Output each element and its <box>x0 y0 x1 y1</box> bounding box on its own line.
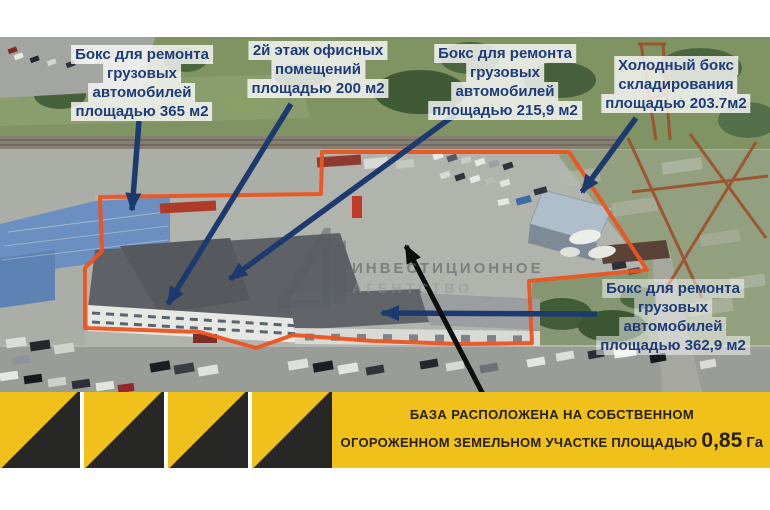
hazard-stripes <box>0 392 332 468</box>
callout-office-200: 2й этаж офисных помещений площадью 200 м… <box>247 41 388 98</box>
callout-line: площадью 203.7м2 <box>601 94 750 113</box>
banner-line2-prefix: ОГОРОЖЕННОМ ЗЕМЕЛЬНОМ УЧАСТКЕ ПЛОЩАДЬЮ <box>341 435 698 450</box>
callout-line: грузовых <box>634 298 712 317</box>
callout-box-362: Бокс для ремонта грузовых автомобилей пл… <box>596 279 750 355</box>
callout-line: помещений <box>271 60 365 79</box>
callout-line: Бокс для ремонта <box>71 45 213 64</box>
callout-line: площадью 200 м2 <box>247 79 388 98</box>
callout-line: автомобилей <box>89 83 196 102</box>
arrow-box-362 <box>382 313 597 314</box>
banner-area-unit: Га <box>746 434 763 451</box>
callout-line: автомобилей <box>620 317 727 336</box>
callout-line: Холодный бокс <box>614 56 738 75</box>
banner-text: БАЗА РАСПОЛОЖЕНА НА СОБСТВЕННОМ ОГОРОЖЕН… <box>340 392 764 468</box>
callout-line: грузовых <box>103 64 181 83</box>
callout-line: Бокс для ремонта <box>434 44 576 63</box>
banner-line1: БАЗА РАСПОЛОЖЕНА НА СОБСТВЕННОМ <box>410 407 694 422</box>
banner-line2: ОГОРОЖЕННОМ ЗЕМЕЛЬНОМ УЧАСТКЕ ПЛОЩАДЬЮ 0… <box>341 429 764 453</box>
callout-line: площадью 365 м2 <box>71 102 212 121</box>
hazard-tile <box>84 392 164 468</box>
callout-box-215: Бокс для ремонта грузовых автомобилей пл… <box>428 44 582 120</box>
info-banner: БАЗА РАСПОЛОЖЕНА НА СОБСТВЕННОМ ОГОРОЖЕН… <box>0 392 770 468</box>
callout-box-365: Бокс для ремонта грузовых автомобилей пл… <box>71 45 213 121</box>
callout-line: 2й этаж офисных <box>249 41 387 60</box>
callout-line: площадью 215,9 м2 <box>428 101 582 120</box>
callout-line: площадью 362,9 м2 <box>596 336 750 355</box>
callout-line: Бокс для ремонта <box>602 279 744 298</box>
callout-cold-box-203: Холодный бокс складирования площадью 203… <box>601 56 750 113</box>
banner-area-value: 0,85 <box>701 429 742 452</box>
hazard-tile <box>168 392 248 468</box>
callout-line: грузовых <box>466 63 544 82</box>
hazard-tile <box>252 392 332 468</box>
listing-flyer: ИНВЕСТИЦИОННОЕ АГЕНТСТВО Бокс для ремонт… <box>0 0 770 510</box>
callout-line: автомобилей <box>452 82 559 101</box>
hazard-tile <box>0 392 80 468</box>
callout-line: складирования <box>614 75 737 94</box>
